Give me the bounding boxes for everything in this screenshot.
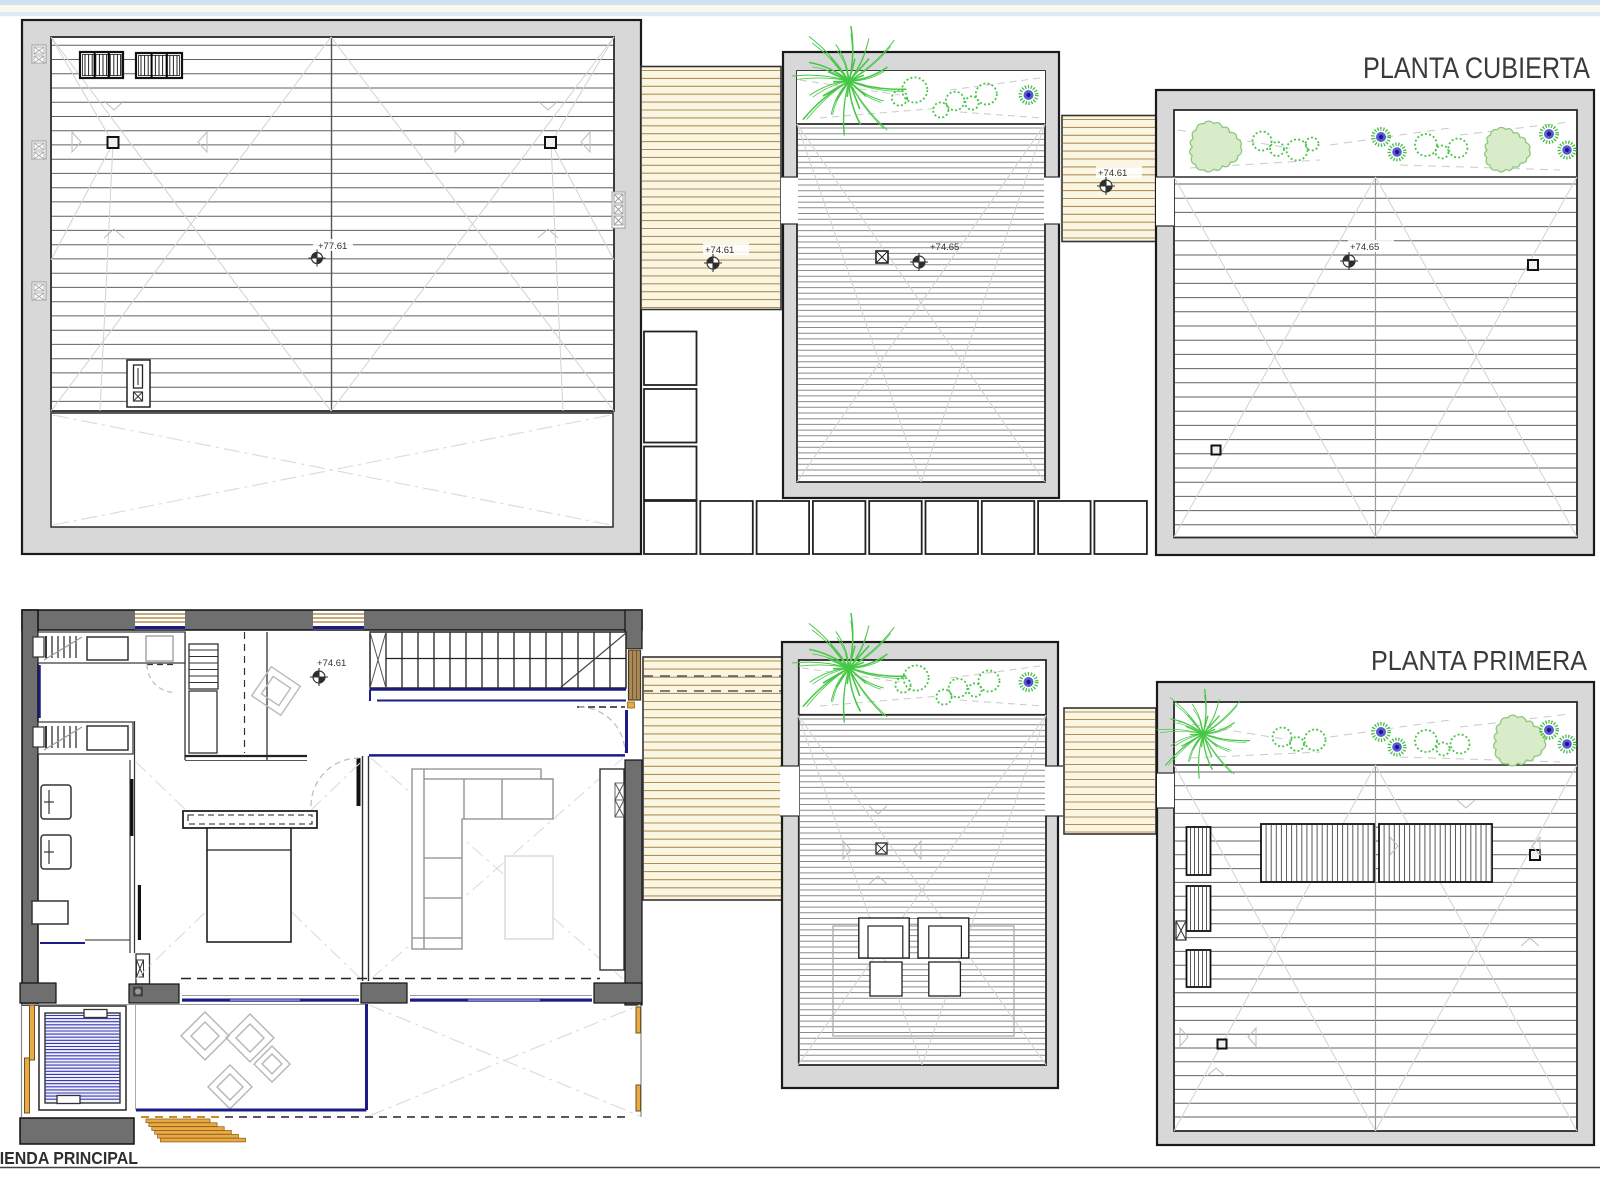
svg-text:+74.65: +74.65 [930, 242, 959, 253]
svg-text:+74.65: +74.65 [1350, 242, 1379, 253]
svg-text:+74.61: +74.61 [1098, 168, 1127, 179]
svg-text:VIVIENDA PRINCIPAL: VIVIENDA PRINCIPAL [0, 1148, 138, 1168]
svg-text:PLANTA PRIMERA: PLANTA PRIMERA [1371, 645, 1587, 676]
svg-text:+77.61: +77.61 [318, 241, 347, 252]
svg-text:PLANTA CUBIERTA: PLANTA CUBIERTA [1363, 52, 1590, 85]
svg-text:+74.61: +74.61 [705, 245, 734, 256]
svg-text:+74.61: +74.61 [317, 658, 346, 669]
